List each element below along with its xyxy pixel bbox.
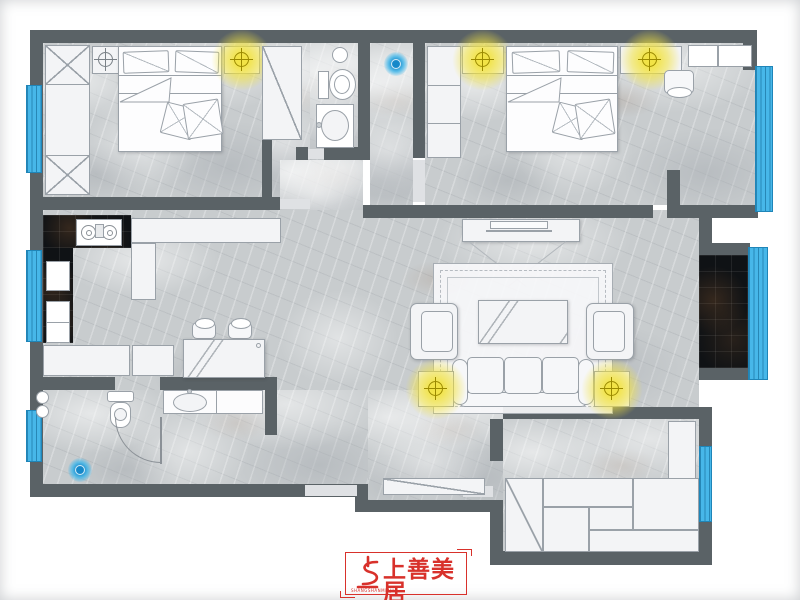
basin-bowl	[173, 393, 207, 412]
wall-under-bay1	[710, 205, 758, 218]
logo-frame-corner	[457, 549, 472, 556]
wall-bottom-mid	[355, 500, 503, 512]
sofa-back	[458, 392, 588, 407]
toilet-bowl-inner	[334, 75, 350, 94]
wall-bedroom3-left-stub	[490, 419, 503, 461]
floor-balcony-dark-tile	[699, 255, 748, 368]
divider-line	[47, 322, 69, 323]
washbasin-counter	[163, 390, 263, 414]
window-kitchen-left	[26, 250, 42, 342]
wall-corridor-stub	[262, 140, 272, 197]
wall-bedroom2-bottom	[363, 205, 653, 218]
wardrobe-cab-6	[589, 530, 699, 552]
wardrobe-x-top	[45, 45, 90, 85]
corner-cabinet-b	[718, 45, 752, 67]
ceiling-lamp-icon	[98, 52, 113, 67]
wardrobe-cab-1	[505, 478, 543, 552]
glow-lamp-icon	[604, 381, 619, 396]
shoe-cabinet	[383, 478, 485, 495]
wall-inset-cabinet	[305, 485, 357, 496]
brand-subtext: SHANGSHANMEIJU	[351, 588, 395, 593]
wardrobe-cab-4	[543, 507, 589, 552]
faucet-dot	[187, 389, 192, 394]
hookup-circle	[36, 391, 49, 404]
wall-bath-right	[358, 43, 370, 160]
base-cabinet-b	[132, 345, 174, 376]
wall-bedroom2-stub	[667, 170, 680, 210]
floor-plan	[0, 0, 800, 600]
pillow	[567, 50, 615, 74]
counter-white-side	[131, 243, 156, 300]
glow-lamp-icon	[234, 52, 249, 67]
tall-cabinet-bed3	[668, 421, 696, 479]
brand-text: 上善美居	[383, 559, 469, 600]
base-cabinet-a	[43, 345, 130, 376]
window-bedroom1-left	[26, 85, 42, 173]
toilet2-tank	[107, 391, 134, 402]
glow-lamp-icon	[428, 381, 443, 396]
wall-bedroom1-bottom	[30, 197, 280, 210]
wardrobe-x-bottom	[45, 155, 90, 195]
armchair-right	[586, 303, 634, 360]
wall-kitchen-bottom-b	[160, 377, 277, 390]
pillow	[512, 50, 561, 74]
stool-bedroom2	[664, 70, 694, 94]
stove-panel	[95, 224, 104, 238]
logo-monogram-icon	[351, 555, 383, 589]
toilet-tank	[318, 71, 329, 99]
blanket-fold	[119, 74, 175, 104]
counter-divider	[216, 391, 217, 413]
glass-table	[183, 339, 265, 378]
wardrobe-cab-2	[543, 478, 633, 507]
throw-pillow	[182, 98, 223, 139]
window-bathroom-left	[26, 410, 42, 462]
faucet-dot	[316, 122, 322, 128]
sink-drainer	[46, 261, 70, 291]
threshold-bathroom-top	[308, 149, 324, 159]
sofa-cushion	[542, 357, 579, 394]
burner-icon	[81, 225, 96, 240]
wardrobe-cab-5	[589, 507, 633, 530]
wall-vestibule-right	[265, 390, 277, 435]
kitchen-appliance	[46, 301, 70, 343]
pillow	[123, 50, 170, 74]
wall-bath-bottom-a	[296, 147, 308, 160]
stool-dining	[192, 322, 216, 339]
counter-white-top	[131, 218, 281, 243]
armchair-seat	[421, 311, 453, 352]
stool-dining	[228, 322, 252, 339]
table-dot	[256, 343, 261, 348]
sofa-3-seat	[452, 355, 594, 408]
floor-drain-icon	[384, 52, 408, 76]
bed-1	[118, 46, 222, 152]
floor-drain-icon	[68, 458, 92, 482]
window-bedroom3-right	[699, 446, 712, 522]
wall-bath-bottom-b	[324, 147, 358, 160]
wall-kitchen-bottom-a	[30, 377, 115, 390]
basin-bowl	[321, 110, 349, 141]
downlight	[332, 47, 348, 63]
corner-cabinet-a	[688, 45, 718, 67]
threshold-bedroom1	[280, 199, 310, 209]
gas-stove	[76, 219, 122, 246]
bed-2	[506, 46, 618, 152]
sofa-cushion	[467, 357, 504, 394]
wall-balcony-bottom	[699, 368, 750, 380]
coffee-table	[478, 300, 568, 344]
glow-lamp-icon	[475, 52, 490, 67]
window-bedroom2-bay	[755, 66, 773, 212]
tv-stand-line	[486, 230, 552, 232]
burner-icon	[102, 225, 117, 240]
wall-hall-bed2	[413, 43, 425, 158]
floorplan-page: 上善美居 SHANGSHANMEIJU	[0, 0, 800, 600]
window-balcony-bay	[748, 247, 768, 380]
tv-icon	[490, 221, 548, 229]
throw-pillow	[574, 98, 615, 139]
armchair-seat	[593, 311, 625, 352]
blanket-fold	[507, 74, 565, 104]
brand-logo: 上善美居 SHANGSHANMEIJU	[343, 550, 469, 597]
door-leaf	[160, 417, 162, 464]
shelf-line	[428, 123, 460, 124]
wall-bedroom3-bottom	[490, 551, 712, 565]
shelf-line	[428, 85, 460, 86]
sofa-cushion	[504, 357, 542, 394]
wall-balcony-top	[699, 243, 750, 255]
armchair-left	[410, 303, 458, 360]
tall-wardrobe	[262, 46, 302, 140]
threshold-bedroom2	[413, 160, 425, 202]
glow-lamp-icon	[642, 52, 657, 67]
wardrobe-cab-3	[633, 478, 699, 530]
hookup-circle	[36, 405, 49, 418]
